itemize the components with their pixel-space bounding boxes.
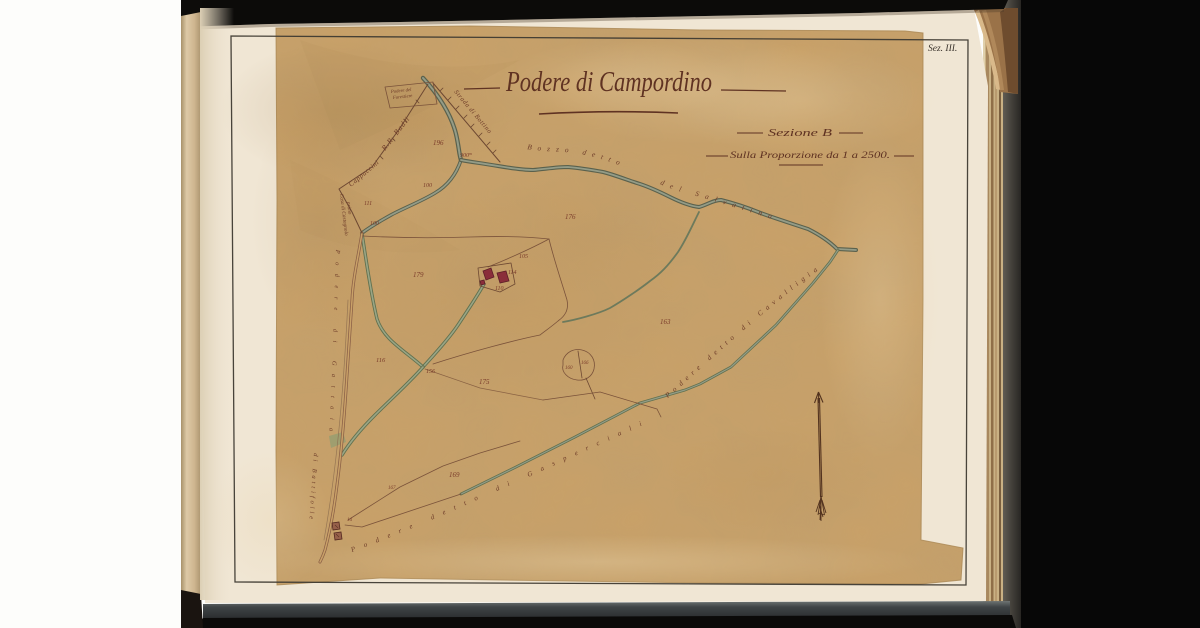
svg-text:Sezione B: Sezione B [768, 127, 832, 139]
svg-text:167: 167 [388, 486, 396, 491]
svg-text:163: 163 [660, 318, 671, 326]
svg-text:100: 100 [370, 221, 379, 227]
svg-text:179: 179 [413, 271, 424, 279]
svg-text:100: 100 [423, 183, 432, 189]
svg-text:111: 111 [364, 201, 372, 207]
svg-text:196: 196 [433, 139, 444, 147]
svg-text:14: 14 [347, 518, 353, 523]
svg-text:176: 176 [565, 213, 576, 221]
svg-text:116: 116 [376, 357, 386, 364]
svg-text:175: 175 [479, 378, 490, 386]
svg-text:169: 169 [449, 471, 460, 479]
svg-text:166: 166 [581, 361, 589, 366]
svg-text:156: 156 [426, 369, 435, 375]
svg-text:160: 160 [565, 366, 573, 371]
svg-text:Sulla Proporzione da 1 a 2500.: Sulla Proporzione da 1 a 2500. [730, 151, 890, 161]
svg-text:Podere di Campordino: Podere di Campordino [505, 66, 712, 98]
svg-text:110: 110 [495, 286, 504, 292]
svg-text:114: 114 [508, 269, 517, 276]
svg-text:105: 105 [519, 254, 528, 260]
svg-text:Sez. III.: Sez. III. [928, 44, 957, 54]
